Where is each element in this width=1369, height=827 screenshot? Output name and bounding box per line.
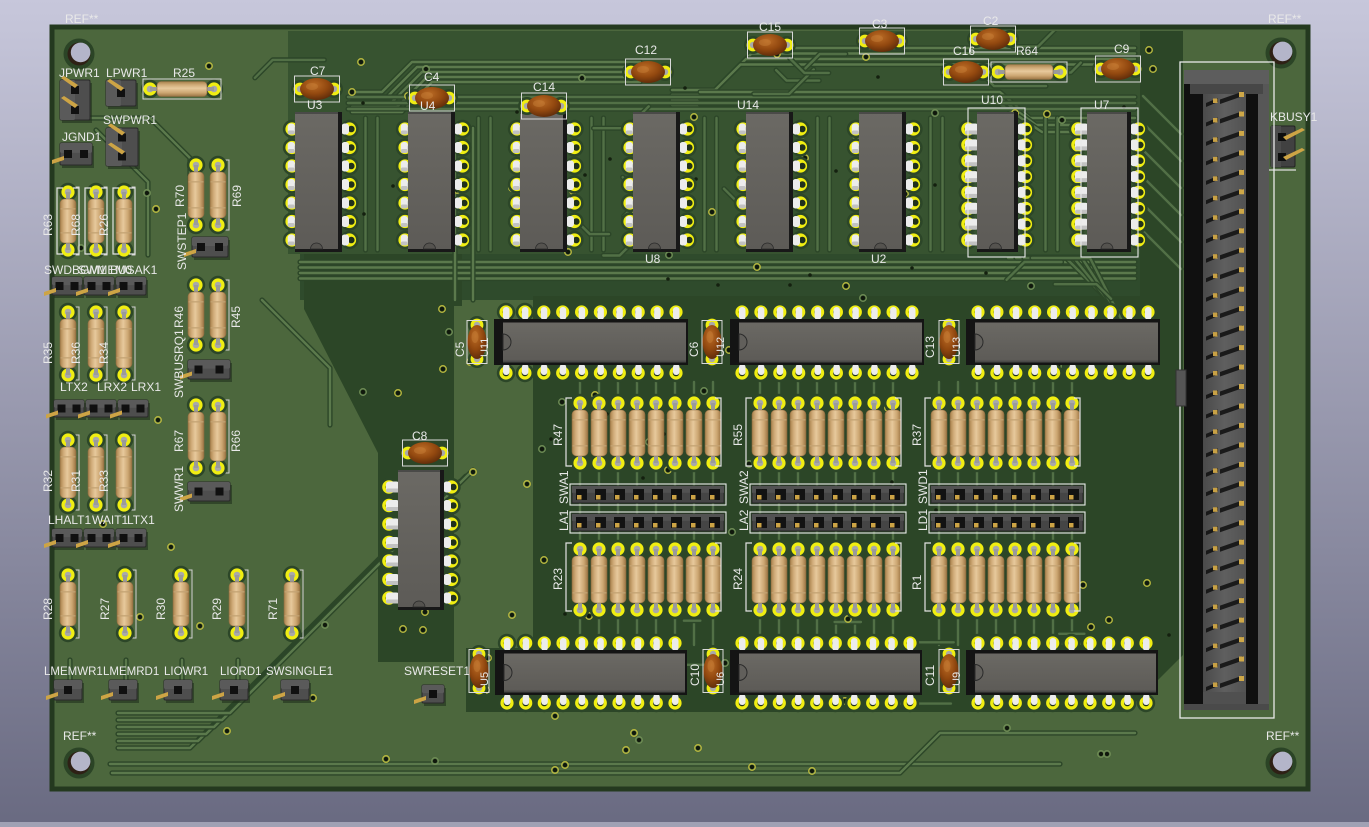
svg-text:R67: R67 <box>172 430 186 452</box>
svg-text:R36: R36 <box>69 342 83 364</box>
svg-text:C13: C13 <box>923 336 937 358</box>
svg-text:U6: U6 <box>715 672 727 686</box>
svg-text:U8: U8 <box>645 252 661 266</box>
svg-text:R47: R47 <box>551 424 565 446</box>
svg-text:C12: C12 <box>635 43 657 57</box>
svg-text:LIOWR1: LIOWR1 <box>164 666 208 678</box>
svg-text:REF**: REF** <box>65 12 99 26</box>
svg-text:U3: U3 <box>307 98 323 112</box>
svg-text:R46: R46 <box>172 306 186 328</box>
svg-text:C10: C10 <box>688 664 702 686</box>
svg-text:REF**: REF** <box>1266 729 1300 743</box>
svg-text:R66: R66 <box>229 430 243 452</box>
svg-text:U5: U5 <box>479 672 491 686</box>
svg-text:C5: C5 <box>453 341 467 357</box>
svg-text:R23: R23 <box>551 568 565 590</box>
svg-text:R55: R55 <box>731 424 745 446</box>
svg-text:R37: R37 <box>910 424 924 446</box>
svg-text:LRX2: LRX2 <box>97 380 127 394</box>
svg-text:SWWR1: SWWR1 <box>172 466 186 512</box>
svg-text:R25: R25 <box>173 66 195 80</box>
svg-text:LTX1: LTX1 <box>127 513 155 527</box>
svg-text:C4: C4 <box>424 70 440 84</box>
svg-text:R64: R64 <box>1016 44 1038 58</box>
svg-text:JPWR1: JPWR1 <box>59 66 100 80</box>
svg-text:R63: R63 <box>41 214 55 236</box>
svg-text:LRX1: LRX1 <box>131 380 161 394</box>
svg-text:LIORD1: LIORD1 <box>220 666 262 678</box>
svg-text:SWBUSRQ1: SWBUSRQ1 <box>172 329 186 398</box>
svg-text:R45: R45 <box>229 306 243 328</box>
svg-text:C8: C8 <box>412 429 428 443</box>
svg-text:R24: R24 <box>731 568 745 590</box>
svg-text:U10: U10 <box>981 93 1003 107</box>
svg-text:R1: R1 <box>910 574 924 590</box>
svg-text:R28: R28 <box>41 598 55 620</box>
svg-text:SWPWR1: SWPWR1 <box>103 113 157 127</box>
svg-text:R29: R29 <box>210 598 224 620</box>
svg-text:R27: R27 <box>98 598 112 620</box>
svg-text:C9: C9 <box>1114 42 1130 56</box>
svg-text:REF**: REF** <box>63 729 97 743</box>
svg-text:R71: R71 <box>266 598 280 620</box>
svg-text:SWSINGLE1: SWSINGLE1 <box>266 666 333 678</box>
svg-text:U13: U13 <box>951 337 963 357</box>
svg-text:R68: R68 <box>69 214 83 236</box>
svg-text:R33: R33 <box>97 470 111 492</box>
svg-text:SWD1: SWD1 <box>916 469 930 504</box>
svg-text:LD1: LD1 <box>916 509 930 531</box>
svg-text:R70: R70 <box>173 185 187 207</box>
svg-text:R30: R30 <box>154 598 168 620</box>
svg-text:LTX2: LTX2 <box>60 380 88 394</box>
svg-text:JGND1: JGND1 <box>62 130 102 144</box>
svg-text:C6: C6 <box>687 341 701 357</box>
svg-text:LMEMWR1: LMEMWR1 <box>44 666 103 678</box>
svg-text:R26: R26 <box>97 214 111 236</box>
svg-text:C16: C16 <box>953 44 975 58</box>
svg-text:SWA2: SWA2 <box>737 470 751 504</box>
svg-text:R31: R31 <box>69 470 83 492</box>
svg-text:U7: U7 <box>1094 98 1110 112</box>
svg-text:R32: R32 <box>41 470 55 492</box>
svg-text:LA2: LA2 <box>737 509 751 531</box>
svg-text:REF**: REF** <box>1268 12 1302 26</box>
svg-text:LA1: LA1 <box>557 509 571 531</box>
svg-text:R69: R69 <box>230 185 244 207</box>
svg-text:BUSAK1: BUSAK1 <box>110 263 158 277</box>
svg-text:KBUSY1: KBUSY1 <box>1270 110 1318 124</box>
svg-text:SWA1: SWA1 <box>557 470 571 504</box>
svg-text:R34: R34 <box>97 342 111 364</box>
svg-text:R35: R35 <box>41 342 55 364</box>
svg-text:U9: U9 <box>951 672 963 686</box>
svg-text:C14: C14 <box>533 80 555 94</box>
svg-text:U12: U12 <box>715 337 727 357</box>
svg-text:U14: U14 <box>737 98 759 112</box>
svg-text:C11: C11 <box>923 665 937 686</box>
svg-text:U11: U11 <box>479 338 491 357</box>
svg-text:C7: C7 <box>310 64 326 78</box>
svg-text:U2: U2 <box>871 252 887 266</box>
svg-text:C3: C3 <box>872 17 888 31</box>
svg-text:LMEMRD1: LMEMRD1 <box>103 666 159 678</box>
svg-text:C15: C15 <box>759 20 781 34</box>
svg-text:SWSTEP1: SWSTEP1 <box>175 212 189 270</box>
svg-text:C2: C2 <box>983 14 999 28</box>
svg-text:LHALT1: LHALT1 <box>48 513 91 527</box>
svg-text:LPWR1: LPWR1 <box>106 66 148 80</box>
svg-text:U4: U4 <box>420 99 436 113</box>
svg-text:SWRESET1: SWRESET1 <box>404 664 470 678</box>
svg-text:WAIT1: WAIT1 <box>92 513 129 527</box>
